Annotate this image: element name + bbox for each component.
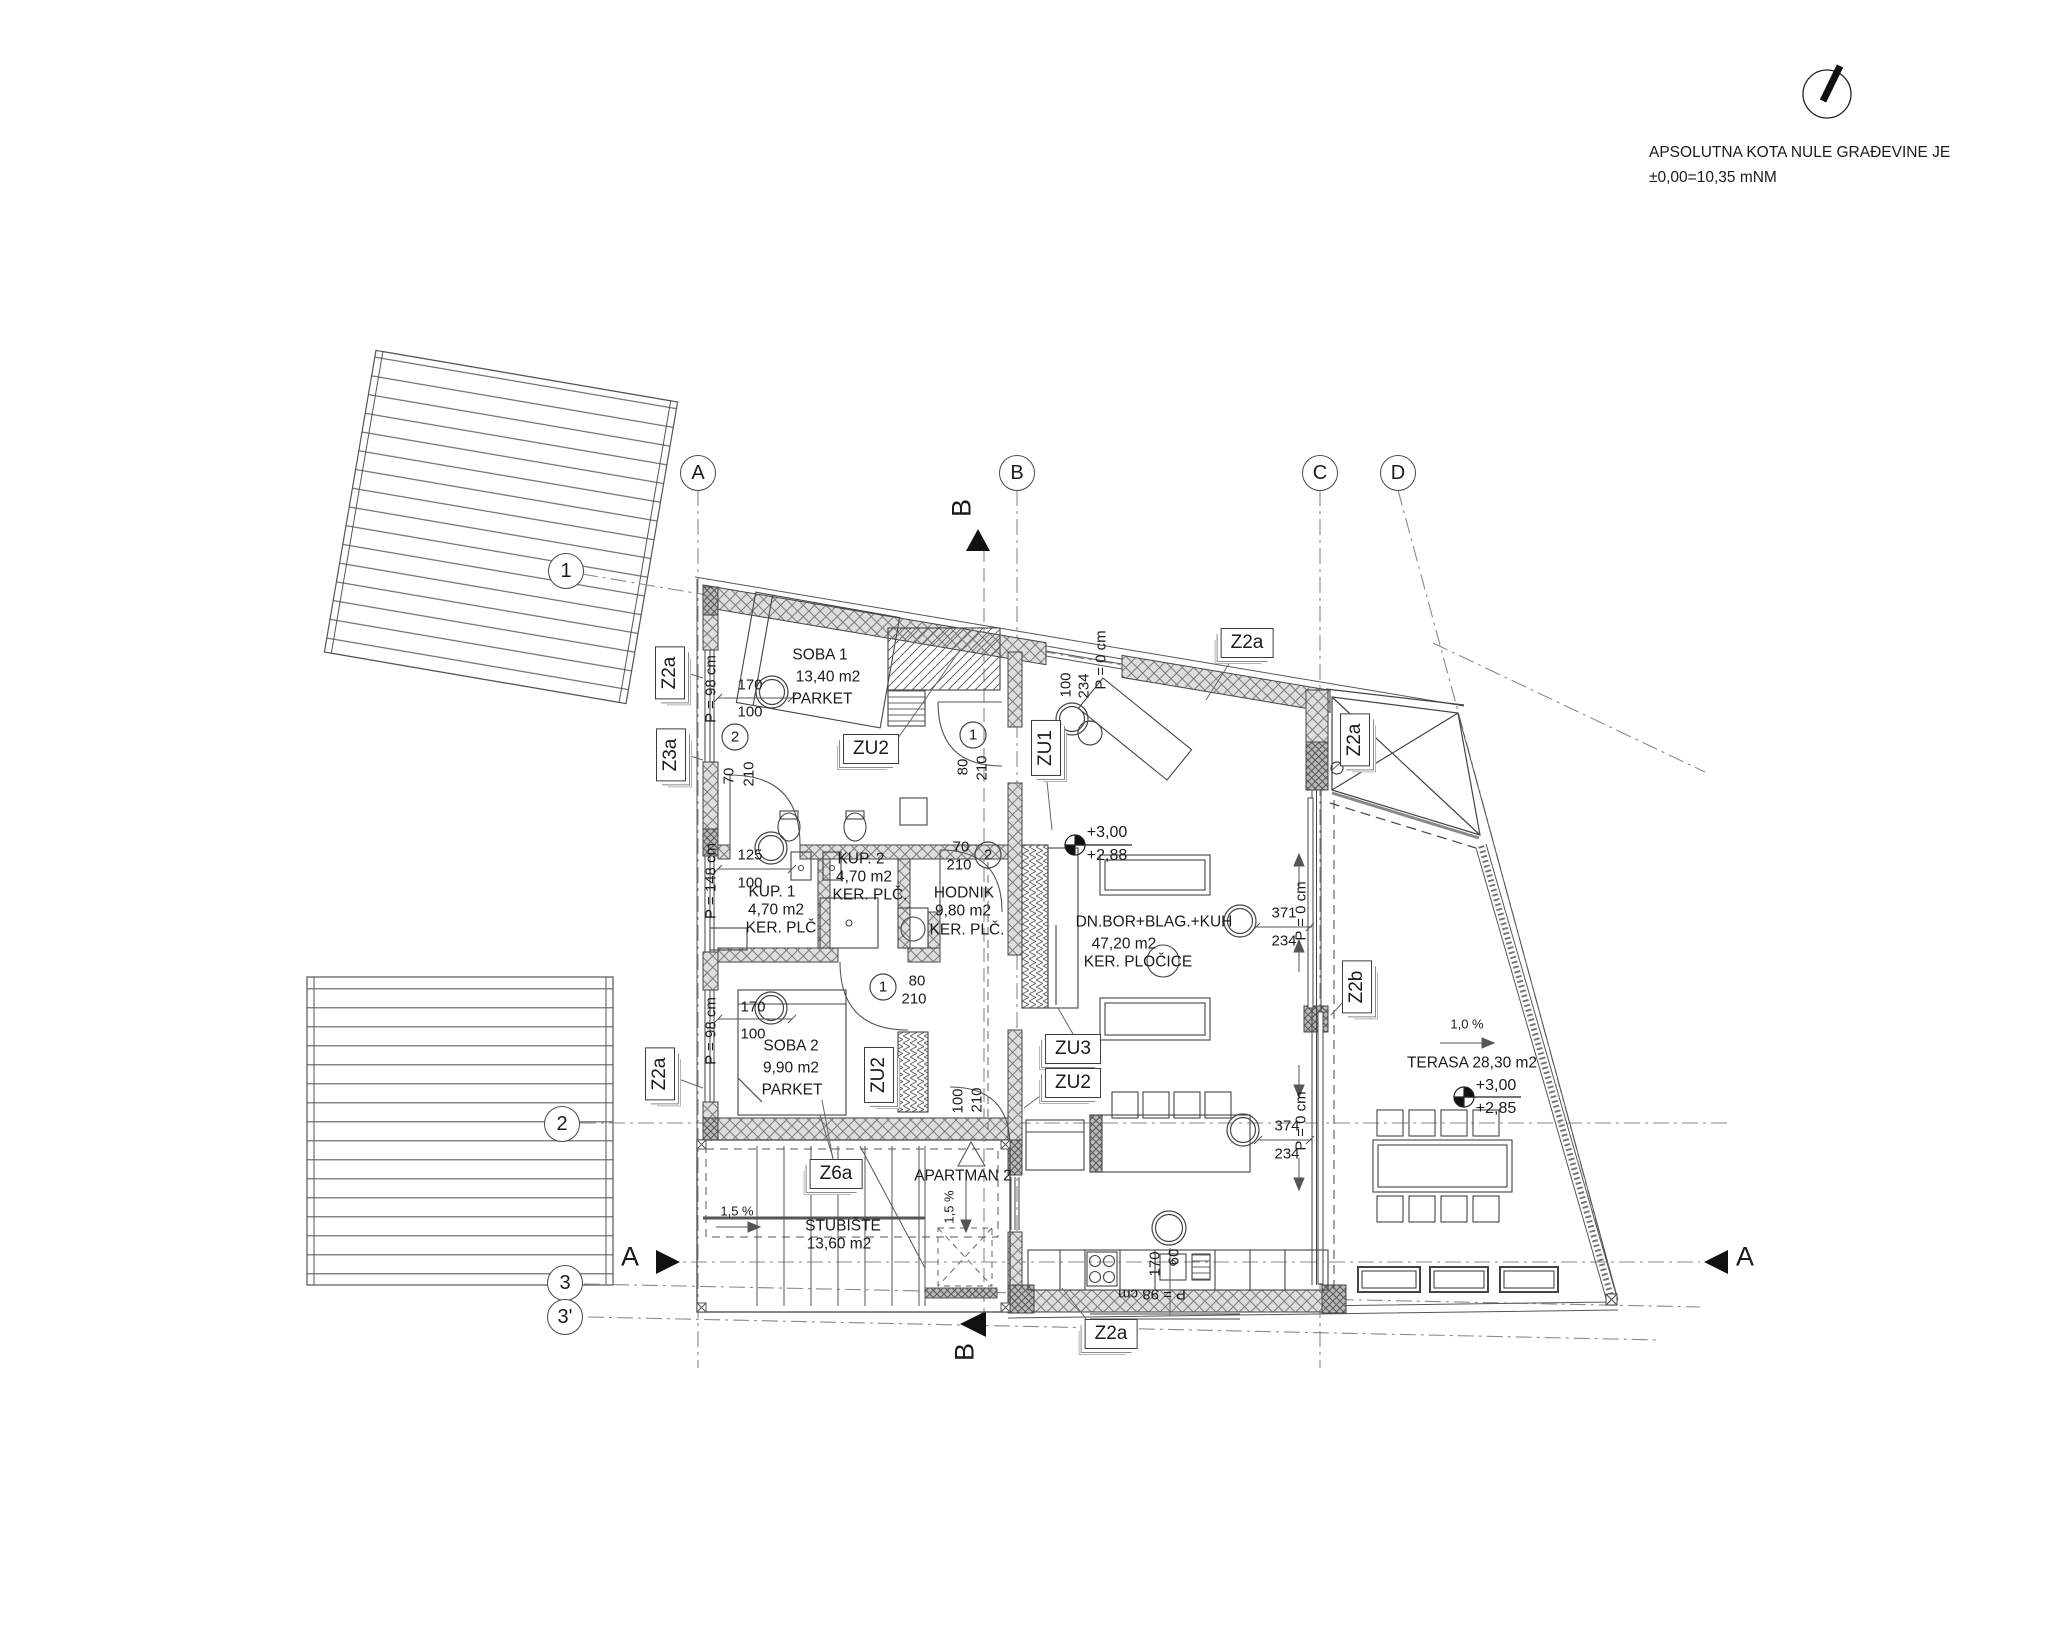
tag-z6a: Z6a [810,1159,863,1189]
room-living-floor: KER. PLOČICE [1084,954,1193,970]
grid-bubble-c: C [1302,455,1338,491]
tag-zu1: ZU1 [1031,720,1061,776]
tag-z2a-right: Z2a [1340,714,1370,767]
room-soba1-floor: PARKET [792,691,853,707]
grid-bubble-a: A [680,455,716,491]
dim-door-soba1-w: 80 [956,759,971,776]
dim-win-soba2-h: 100 [740,1027,765,1042]
dim-door-entry-h: 210 [970,1087,985,1112]
room-soba1-area: 13,40 m2 [796,669,861,685]
dim-win-kitchen-parapet: P = 98 cm [1118,1287,1186,1302]
neighbor-roof-upper [324,350,677,703]
level-living-bottom: +2,88 [1087,848,1127,864]
dim-win-kitchen-w: 170 [1148,1251,1163,1276]
level-terrace-bottom: +2,85 [1476,1101,1516,1117]
dim-door-kup1-h: 210 [742,761,757,786]
dim-door-balcony-parapet: P = 0 cm [1094,630,1109,689]
tag-z3a-left: Z3a [656,729,686,782]
grid-bubble-3: 3 [547,1265,583,1301]
section-a-left-label: A [621,1242,639,1273]
level-terrace-top: +3,00 [1476,1078,1516,1094]
slope-stairs: 1,5 % [720,1205,753,1218]
grid-bubble-3p: 3' [547,1299,583,1335]
slope-terrace: 1,0 % [1450,1018,1483,1031]
room-soba1-name: SOBA 1 [792,647,847,663]
dim-door-balcony-w: 100 [1059,672,1074,697]
room-stubiste-name: STUBIŠTE [805,1218,881,1234]
dim-door-entry-w: 100 [951,1088,966,1113]
tag-z2b-right: Z2b [1342,961,1372,1014]
dim-door-soba1-h: 210 [975,755,990,780]
slope-entry: 1,5 % [943,1190,956,1223]
dim-win-soba2-w: 170 [740,1000,765,1015]
dim-win-kitchen-h: 60 [1167,1249,1182,1266]
room-living-name: DN.BOR+BLAG.+KUH [1076,914,1233,930]
tag-z2a-top: Z2a [1221,628,1274,658]
dim-glass-lower-parapet: P = 0 cm [1294,1091,1309,1150]
dim-win-soba2-parapet: P = 98 cm [704,997,719,1065]
grid-bubble-d: D [1380,455,1416,491]
apartment-label: APARTMAN 2 [914,1168,1012,1184]
door-number-kup2: 2 [984,847,992,864]
dim-win-kup-parapet: P = 148 cm [704,843,719,919]
room-kup2-floor: KER. PLČ. [833,887,908,903]
dim-win-soba1-w: 170 [737,678,762,693]
dim-win-soba1-parapet: P = 98 cm [704,655,719,723]
grid-bubble-1: 1 [548,553,584,589]
dim-win-soba1-h: 100 [737,705,762,720]
room-kup1-area: 4,70 m2 [748,902,804,918]
room-soba2-area: 9,90 m2 [763,1060,819,1076]
dim-win-kup-h: 100 [737,876,762,891]
room-soba2-floor: PARKET [762,1082,823,1098]
room-hodnik-floor: KER. PLČ. [930,922,1005,938]
level-living-top: +3,00 [1087,825,1127,841]
dim-door-balcony-h: 234 [1077,673,1092,698]
dim-win-kup-w: 125 [737,848,762,863]
tag-z2a-left-upper: Z2a [655,647,685,700]
tag-z2a-left-lower: Z2a [645,1048,675,1101]
room-terasa-name: TERASA 28,30 m2 [1407,1055,1537,1071]
room-kup2-name: KUP. 2 [837,851,884,867]
tag-zu2-soba2: ZU2 [864,1047,894,1103]
grid-bubble-2: 2 [544,1106,580,1142]
dim-door-kup1-w: 70 [722,768,737,785]
dim-door-soba2-w: 80 [909,974,926,989]
grid-bubble-b: B [999,455,1035,491]
door-number-soba1: 1 [969,727,977,744]
section-b-bottom-label: B [950,1343,981,1361]
dim-glass-upper-parapet: P = 0 cm [1294,881,1309,940]
dim-door-kup2-h: 210 [946,858,971,873]
tag-zu2-soba1: ZU2 [843,734,899,764]
dim-door-soba2-h: 210 [901,992,926,1007]
section-b-top-label: B [947,499,978,517]
room-kup1-floor: KER. PLČ [746,920,817,936]
tag-zu2-kitchen: ZU2 [1045,1068,1101,1098]
datum-note-line2: ±0,00=10,35 mNM [1649,169,1777,187]
floor-plan-sheet: APSOLUTNA KOTA NULE GRAĐEVINE JE ±0,00=1… [0,0,2067,1637]
tag-z2a-bottom: Z2a [1085,1319,1138,1349]
plan-linework [0,0,2067,1637]
dim-door-kup2-w: 70 [953,840,970,855]
room-hodnik-name: HODNIK [934,885,994,901]
room-kup2-area: 4,70 m2 [836,869,892,885]
room-soba2-name: SOBA 2 [763,1038,818,1054]
door-number-soba2: 1 [879,979,887,996]
terrace-railing [1476,844,1617,1305]
section-a-right-label: A [1736,1242,1754,1273]
room-hodnik-area: 9,80 m2 [935,903,991,919]
datum-note-line1: APSOLUTNA KOTA NULE GRAĐEVINE JE [1649,144,1950,162]
door-number-kup1: 2 [731,729,739,746]
room-living-area: 47,20 m2 [1092,936,1157,952]
tag-zu3: ZU3 [1045,1034,1101,1064]
north-arrow-icon [1803,66,1851,118]
room-stubiste-area: 13,60 m2 [807,1236,872,1252]
